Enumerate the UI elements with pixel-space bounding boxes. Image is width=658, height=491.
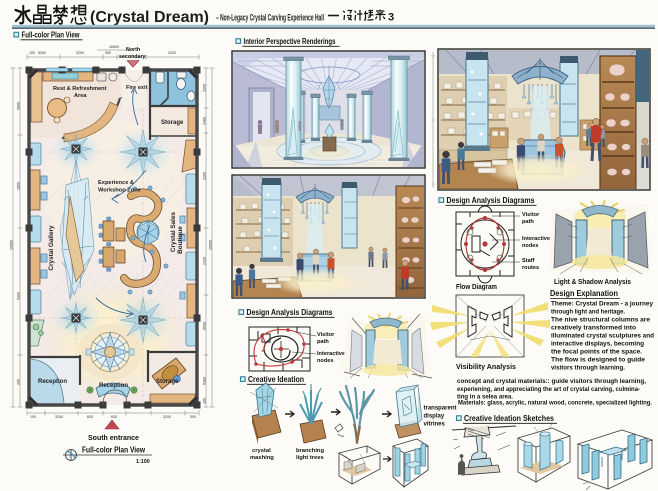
- svg-text:Interior Perspective Rendering: Interior Perspective Renderings: [244, 36, 336, 46]
- svg-text:Area: Area: [74, 93, 87, 99]
- svg-text:light trees: light trees: [296, 455, 324, 461]
- svg-text:Flow Diagram: Flow Diagram: [456, 282, 497, 291]
- svg-text:Design Analysis Diagrams: Design Analysis Diagrams: [247, 307, 333, 317]
- svg-text:Storage: Storage: [161, 120, 184, 126]
- svg-text:illuminated crystal sculptures: illuminated crystal sculptures and: [551, 333, 654, 340]
- svg-text:6900: 6900: [17, 102, 21, 110]
- svg-text:3200: 3200: [55, 415, 63, 419]
- svg-text:creatively transformed into: creatively transformed into: [551, 325, 636, 332]
- svg-text:transparent: transparent: [424, 406, 457, 412]
- svg-text:Reception: Reception: [99, 383, 128, 389]
- svg-text:Crystal Sales: Crystal Sales: [170, 211, 177, 252]
- svg-text:display: display: [424, 414, 445, 420]
- svg-text:path: path: [317, 339, 329, 345]
- svg-text:200: 200: [17, 379, 21, 385]
- svg-text:2420: 2420: [203, 257, 207, 265]
- svg-text:Theme: Crystal Dream - a journ: Theme: Crystal Dream - a journey: [551, 301, 653, 308]
- svg-text:6000: 6000: [203, 322, 207, 330]
- svg-text:visitors through learning.: visitors through learning.: [551, 365, 625, 372]
- svg-text:13560: 13560: [10, 240, 14, 250]
- svg-text:Reception: Reception: [38, 379, 67, 385]
- svg-text:630: 630: [87, 415, 93, 419]
- svg-text:Storage: Storage: [156, 379, 179, 385]
- svg-text:300: 300: [190, 415, 196, 419]
- svg-text:nodes: nodes: [522, 243, 538, 249]
- svg-text:15060: 15060: [209, 240, 213, 250]
- svg-text:The nive structural columns ar: The nive structural columns are: [551, 317, 650, 324]
- svg-text:5300: 5300: [17, 292, 21, 300]
- svg-text:5380: 5380: [203, 377, 207, 385]
- svg-text:The flow is designed to guide: The flow is designed to guide: [551, 357, 645, 364]
- svg-text:3160: 3160: [203, 172, 207, 180]
- svg-text:3: 3: [388, 12, 394, 24]
- svg-text:3200: 3200: [76, 51, 84, 55]
- svg-text:Interactive: Interactive: [317, 351, 345, 357]
- svg-text:200: 200: [203, 398, 207, 404]
- svg-text:secondary: secondary: [119, 54, 146, 60]
- svg-text:100: 100: [29, 51, 35, 55]
- svg-text:1480: 1480: [203, 117, 207, 125]
- svg-text:Fire exit: Fire exit: [126, 85, 148, 91]
- svg-text:Interactive: Interactive: [522, 236, 550, 242]
- svg-text:branching: branching: [296, 448, 324, 454]
- svg-text:concept and crystal materials:: concept and crystal materials:: guide vi…: [457, 378, 646, 385]
- svg-text:nodes: nodes: [317, 358, 333, 364]
- svg-text:Full-color Plan View: Full-color Plan View: [22, 30, 80, 40]
- svg-text:Boutique: Boutique: [177, 226, 184, 254]
- svg-text:Visitor: Visitor: [522, 212, 540, 218]
- svg-text:(Crystal Dream): (Crystal Dream): [90, 9, 209, 26]
- svg-text:South entrance: South entrance: [88, 435, 139, 442]
- svg-text:Light & Shadow Analysis: Light & Shadow Analysis: [554, 277, 631, 286]
- svg-text:Visibility Analysis: Visibility Analysis: [456, 362, 516, 371]
- svg-text:300: 300: [105, 51, 111, 55]
- svg-text:100: 100: [30, 415, 36, 419]
- svg-text:vitrines: vitrines: [424, 422, 446, 428]
- svg-text:Workshop Zone: Workshop Zone: [98, 188, 141, 194]
- svg-text:experiening, and appreciating: experiening, and appreciating the art of…: [457, 386, 640, 393]
- svg-text:Staff: Staff: [522, 258, 535, 264]
- svg-text:Creative Ideation: Creative Ideation: [248, 374, 304, 384]
- svg-text:Full-color Plan View: Full-color Plan View: [82, 446, 146, 455]
- svg-text:Visitor: Visitor: [317, 332, 335, 338]
- svg-text:Rest & Refreshment: Rest & Refreshment: [53, 86, 107, 92]
- svg-text:Experience &: Experience &: [98, 180, 134, 186]
- svg-text:Crystal Gallery: Crystal Gallery: [48, 225, 55, 271]
- svg-text:1:100: 1:100: [136, 459, 150, 465]
- svg-text:Creative Ideation Sketches: Creative Ideation Sketches: [464, 413, 554, 423]
- svg-text:mashing: mashing: [250, 455, 274, 461]
- svg-text:crystal: crystal: [252, 448, 271, 454]
- svg-text:Design Explanation: Design Explanation: [550, 288, 618, 298]
- svg-text:the focal points of the space.: the focal points of the space.: [551, 349, 642, 356]
- svg-text:path: path: [522, 219, 534, 225]
- svg-text:16500: 16500: [109, 45, 119, 49]
- svg-text:North: North: [126, 47, 140, 53]
- svg-text:5300: 5300: [38, 51, 46, 55]
- svg-text:– Non-Legacy Crystal Carving E: – Non-Legacy Crystal Carving Experience …: [216, 13, 324, 23]
- svg-text:through light and heritage.: through light and heritage.: [551, 309, 625, 316]
- svg-text:2200: 2200: [168, 51, 176, 55]
- svg-text:routes: routes: [522, 265, 539, 271]
- svg-text:Design Analysis Diagrams: Design Analysis Diagrams: [447, 195, 535, 205]
- svg-text:Materials: glass, acrylic, nat: Materials: glass, acrylic, natural wood,…: [458, 400, 652, 407]
- svg-text:630: 630: [111, 415, 117, 419]
- svg-text:3200: 3200: [163, 415, 171, 419]
- svg-text:1850: 1850: [17, 182, 21, 190]
- svg-text:interactive displays, becoming: interactive displays, becoming: [551, 341, 644, 348]
